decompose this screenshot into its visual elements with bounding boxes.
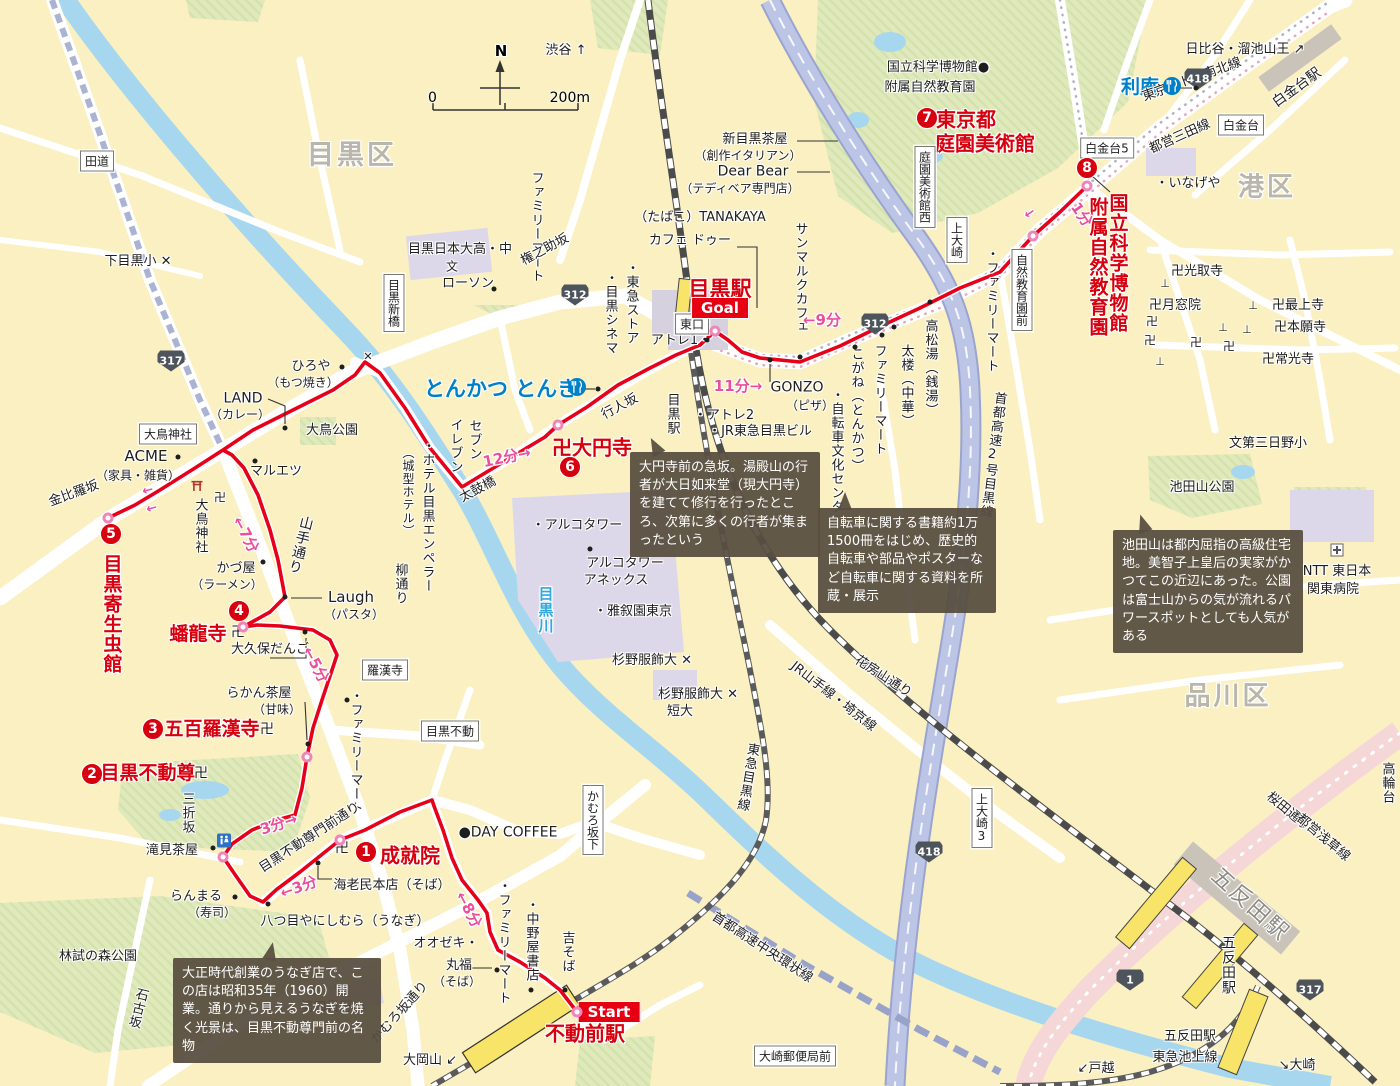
map-label: （城型ホテル） bbox=[402, 447, 414, 538]
map-label: ・目黒シネマ bbox=[604, 271, 617, 355]
map-label: 目黒区 bbox=[307, 142, 397, 170]
map-label: アトレ1・ bbox=[651, 334, 711, 348]
map-label: こがね（とんかつ） bbox=[850, 347, 863, 473]
poi-dot bbox=[563, 988, 568, 993]
map-label: 五反田駅 bbox=[1221, 935, 1235, 995]
poi-dot bbox=[176, 455, 181, 460]
map-label: 卍月窓院 bbox=[1149, 299, 1201, 313]
map-label: 卍 bbox=[1144, 335, 1156, 348]
map-label: 新目黒茶屋 bbox=[722, 133, 787, 147]
map-label: NTT 東日本 bbox=[1303, 565, 1372, 579]
map-label: ・雅叙園東京 bbox=[594, 605, 672, 619]
map-label: 文第三日野小 bbox=[1229, 437, 1307, 451]
map-label: 杉野服飾大 ✕ bbox=[612, 654, 692, 668]
route-number-shield: 418 bbox=[916, 842, 943, 863]
place-badge: 大鳥神社 bbox=[139, 424, 197, 445]
map-label: 林試の森公園 bbox=[59, 950, 137, 964]
hospital-icon bbox=[1331, 542, 1344, 561]
place-badge: 目黒新橋 bbox=[384, 274, 405, 332]
map-label: （そば） bbox=[433, 976, 481, 989]
map-label: 目黒日本大高・中 bbox=[408, 243, 512, 257]
map-label: ファミリーマート bbox=[530, 171, 543, 283]
map-label: アネックス bbox=[584, 574, 649, 588]
place-badge: 白金台5 bbox=[1080, 138, 1134, 159]
map-label: 卍 bbox=[194, 767, 208, 782]
map-label: 海老民本店（そば） bbox=[333, 879, 450, 893]
route-stop-badge-3: 3 bbox=[142, 718, 164, 740]
scale-start-label: 0 bbox=[428, 90, 437, 106]
map-label: （創作イタリアン） bbox=[694, 150, 801, 163]
map-label: ← bbox=[145, 501, 159, 517]
map-label: 太鼓橋 bbox=[458, 475, 499, 505]
map-label: 関東病院 bbox=[1307, 583, 1359, 597]
poi-dot bbox=[316, 861, 321, 866]
map-labels: N 0 200m 渋谷 ↑目黒区下目黒小 ✕目黒日本大高・中文ローソンファミリー… bbox=[0, 0, 1400, 1086]
map-label: ・アトレ2 bbox=[694, 409, 754, 423]
map-label: 蟠龍寺 bbox=[169, 625, 226, 645]
poi-dot bbox=[768, 358, 773, 363]
map-label: ⊥ bbox=[1218, 322, 1228, 334]
map-label: ✕ bbox=[363, 351, 372, 363]
map-label: 八つ目やにしむら（うなぎ） bbox=[260, 915, 429, 929]
poi-dot bbox=[880, 333, 885, 338]
route-waypoint-dot bbox=[1028, 231, 1039, 242]
poi-dot bbox=[340, 365, 345, 370]
map-label: 太楼（中華） bbox=[900, 344, 913, 428]
place-badge: 自然教育園前 bbox=[1012, 249, 1033, 331]
map-label: とんかつ とんき bbox=[424, 378, 578, 400]
poi-dot bbox=[928, 300, 933, 305]
map-label: LAND bbox=[224, 392, 263, 407]
map-label: （家具・雑貨） bbox=[96, 470, 180, 483]
poi-dot bbox=[345, 698, 350, 703]
map-label: ・ファミリーマート bbox=[985, 247, 998, 373]
map-label: 日比谷・溜池山王 ↗ bbox=[1185, 43, 1304, 57]
poi-dot bbox=[529, 988, 534, 993]
map-label: （カレー） bbox=[210, 409, 270, 422]
map-label: ひろや bbox=[291, 360, 330, 374]
place-badge: 白金台 bbox=[1218, 115, 1264, 136]
map-label: Laugh bbox=[328, 590, 374, 606]
map-label: （テディベア専門店） bbox=[680, 183, 799, 196]
map-label: 花房山通り bbox=[852, 654, 914, 701]
map-label: 卍光取寺 bbox=[1171, 265, 1223, 279]
map-label: 大岡山 ↙ bbox=[403, 1054, 457, 1068]
map-label: ローソン bbox=[442, 277, 494, 291]
map-label: ⊥ bbox=[1248, 300, 1258, 312]
map-label: 卍大円寺 bbox=[552, 438, 632, 459]
map-label: 五百羅漢寺 bbox=[164, 720, 259, 740]
map-label: ACME bbox=[125, 449, 168, 465]
map-label: 大鳥公園 bbox=[306, 424, 358, 438]
map-label: 卍常光寺 bbox=[1262, 353, 1314, 367]
map-label: （寿司） bbox=[188, 907, 236, 920]
poi-dot bbox=[892, 325, 897, 330]
toilet-icon bbox=[217, 833, 231, 852]
poi-dot bbox=[492, 287, 497, 292]
info-callout: 池田山は都内屈指の高級住宅地。美智子上皇后の実家がかつてこの近辺にあった。公園は… bbox=[1113, 530, 1303, 653]
map-label: （甘味） bbox=[253, 704, 301, 717]
map-label: 卍 bbox=[1146, 316, 1158, 329]
map-label: 卍 bbox=[214, 492, 226, 505]
place-badge: 上大崎3 bbox=[972, 788, 993, 848]
map-label: ↘大崎 bbox=[1279, 1059, 1316, 1073]
map-label: ・東急ストア bbox=[625, 261, 638, 345]
restaurant-icon bbox=[1163, 77, 1182, 100]
place-badge: 庭園美術館西 bbox=[915, 146, 936, 228]
route-stop-badge-6: 6 bbox=[559, 456, 581, 478]
map-label: 五反田駅 bbox=[1207, 864, 1294, 945]
map-label: ・アルコタワー bbox=[532, 519, 623, 533]
scale-end-label: 200m bbox=[550, 90, 590, 106]
place-badge: かむろ坂下 bbox=[583, 785, 604, 855]
map-label: アルコタワー bbox=[586, 557, 664, 571]
map-label: 権之助坂 bbox=[519, 232, 571, 268]
route-waypoint-dot bbox=[553, 420, 564, 431]
route-waypoint-dot bbox=[1082, 181, 1093, 192]
poi-dot bbox=[588, 547, 593, 552]
map-label: ← bbox=[141, 483, 155, 499]
map-label: ・中野屋書店 bbox=[525, 898, 538, 982]
map-label: ⊥ bbox=[1242, 324, 1252, 336]
map-label: ⊥ bbox=[1160, 278, 1170, 290]
poi-dot bbox=[261, 560, 266, 565]
map-label: 石古坂 bbox=[126, 986, 149, 1030]
map-label: 卍 bbox=[260, 723, 274, 738]
map-label: （もつ焼き） bbox=[267, 377, 339, 390]
route-stop-badge-1: 1 bbox=[355, 841, 377, 863]
map-label: 国立科学博物館 bbox=[1108, 193, 1127, 333]
info-callout-pointer bbox=[838, 492, 852, 510]
map-label: 高松湯（銭湯） bbox=[924, 319, 937, 417]
route-waypoint-dot bbox=[710, 326, 721, 337]
route-flag-start: Start bbox=[578, 1001, 641, 1023]
map-label: ・JR東急目黒ビル bbox=[708, 425, 812, 439]
map-label: 卍 bbox=[1190, 337, 1202, 350]
poi-dot bbox=[253, 459, 258, 464]
map-label: 滝見茶屋 bbox=[146, 844, 198, 858]
info-callout: 自転車に関する書籍約1万1500冊をはじめ、歴史的自転車や部品やポスターなど自転… bbox=[818, 508, 996, 613]
route-stop-badge-8: 8 bbox=[1076, 157, 1098, 179]
map-label: ・ファミリーマート bbox=[497, 879, 510, 1005]
info-callout: 大正時代創業のうなぎ店で、この店は昭和35年（1960）開業。通りから見えるうな… bbox=[173, 958, 381, 1063]
map-label: ↙戸越 bbox=[1078, 1062, 1115, 1076]
compass-north-label: N bbox=[495, 42, 508, 60]
poi-dot bbox=[495, 968, 500, 973]
map-label: ⊥ bbox=[1155, 356, 1165, 368]
poi-dot bbox=[266, 902, 271, 907]
map-label: 3分→ bbox=[258, 812, 299, 839]
poi-dot bbox=[283, 595, 288, 600]
route-number-shield: 312 bbox=[862, 314, 889, 335]
map-label: 池田山公園 bbox=[1169, 481, 1234, 495]
map-label: オオゼキ・ bbox=[413, 937, 478, 951]
map-label: 目黒不動尊門前通り bbox=[257, 800, 363, 875]
route-stop-badge-5: 5 bbox=[100, 523, 122, 545]
route-stop-badge-4: 4 bbox=[228, 600, 250, 622]
map-label: 金比羅坂 bbox=[47, 479, 101, 510]
map-label: 渋谷 ↑ bbox=[545, 44, 586, 58]
map-label: 12分→ bbox=[482, 445, 533, 470]
map-label: 東急池上線 bbox=[1152, 1051, 1217, 1065]
map-label: 山手通り bbox=[286, 514, 314, 576]
poi-dot bbox=[283, 426, 288, 431]
map-label: 庭園美術館 bbox=[935, 134, 1035, 155]
poi-dot bbox=[853, 345, 858, 350]
map-label: 文 bbox=[446, 261, 458, 274]
map-label: 吉そば bbox=[561, 931, 574, 973]
map-label: ・ファミリーマート bbox=[349, 689, 362, 815]
map-label: 目黒駅 bbox=[666, 393, 679, 435]
poi-dot bbox=[211, 846, 216, 851]
place-badge: 羅漢寺 bbox=[362, 660, 408, 681]
route-waypoint-dot bbox=[572, 1007, 583, 1018]
map-label: ←9分 bbox=[803, 313, 841, 329]
map-label: 東京都 bbox=[936, 110, 996, 131]
map-label: （ラーメン） bbox=[191, 579, 263, 592]
map-label: 柳通り bbox=[394, 563, 407, 605]
map-label: 東急目黒線 bbox=[735, 741, 760, 812]
map-label: ←5分 bbox=[299, 645, 331, 686]
info-callout: 大円寺前の急坂。湯殿山の行者が大日如来堂（現大円寺）を建てて修行を行ったところ、… bbox=[630, 452, 820, 557]
place-badge: 目黒不動 bbox=[421, 721, 479, 742]
map-label: 港区 bbox=[1238, 174, 1296, 201]
map-label: ●DAY COFFEE bbox=[459, 826, 558, 841]
map-label: 高輪台 bbox=[1381, 762, 1394, 804]
map-label: セブン bbox=[468, 419, 481, 461]
map-label: 首都高速2号目黒線 bbox=[978, 391, 1007, 520]
map-label: 卍本願寺 bbox=[1274, 321, 1326, 335]
map-label: 11分→ bbox=[714, 379, 762, 395]
map-label: 杉野服飾大 ✕ bbox=[658, 688, 738, 702]
map-label: ファミリーマート bbox=[873, 344, 886, 456]
map-label: 下目黒小 ✕ bbox=[104, 255, 171, 269]
route-stop-badge-2: 2 bbox=[81, 763, 103, 785]
poi-dot bbox=[798, 355, 803, 360]
poi-dot bbox=[596, 387, 601, 392]
route-waypoint-dot bbox=[238, 622, 249, 633]
place-badge: 大崎郵便局前 bbox=[754, 1046, 836, 1067]
map-label: 成就院 bbox=[380, 846, 440, 867]
map-label: 不動前駅 bbox=[545, 1024, 625, 1045]
map-label: ←8分 bbox=[452, 890, 484, 931]
route-number-shield: 1 bbox=[1117, 970, 1144, 991]
map-label: （たばこ）TANAKAYA bbox=[634, 211, 765, 225]
map-label: ・ホテル目黒エンペラー bbox=[421, 439, 434, 593]
route-waypoint-dot bbox=[335, 835, 346, 846]
poi-dot bbox=[705, 338, 710, 343]
map-label: 首都高速中央環状線 bbox=[709, 910, 815, 985]
route-number-shield: 317 bbox=[1297, 980, 1324, 1001]
route-waypoint-dot bbox=[218, 852, 229, 863]
map-label: 五反田駅 bbox=[1164, 1030, 1216, 1044]
map-label: かづ屋 bbox=[216, 562, 255, 576]
map-label: 品川区 bbox=[1184, 683, 1271, 710]
place-badge: 田道 bbox=[80, 151, 114, 172]
map-label: 目黒不動尊 bbox=[100, 764, 195, 784]
route-stop-badge-7: 7 bbox=[916, 107, 938, 129]
place-badge: 上大崎 bbox=[947, 217, 968, 263]
map-label: らんまる bbox=[170, 890, 222, 904]
poi-dot bbox=[1194, 86, 1199, 91]
map-label: 目黒寄生虫館 bbox=[102, 554, 121, 674]
map-label: ←7分 bbox=[229, 515, 261, 556]
torii-icon bbox=[191, 477, 204, 496]
map-label: 丸福 bbox=[446, 959, 472, 973]
route-number-shield: 312 bbox=[562, 285, 589, 306]
map-label: ← bbox=[1022, 205, 1039, 222]
map-label: 大久保だんご bbox=[231, 643, 309, 657]
map-label: 目黒川 bbox=[538, 586, 553, 634]
map-label: 白金台駅 bbox=[1270, 66, 1324, 111]
map-label: 行人坂 bbox=[600, 392, 641, 422]
map-label: ・いなげや bbox=[1155, 177, 1220, 191]
map-label: カフェ ドゥー bbox=[649, 234, 731, 248]
route-flag-goal: Goal bbox=[691, 297, 749, 319]
map-label: （パスタ） bbox=[324, 609, 384, 622]
map-label: （ピザ） bbox=[786, 400, 834, 413]
route-number-shield: 317 bbox=[158, 351, 185, 372]
scale-bar: 0 200m bbox=[425, 90, 590, 116]
poi-dot bbox=[306, 742, 311, 747]
walking-course-map: N 0 200m 渋谷 ↑目黒区下目黒小 ✕目黒日本大高・中文ローソンファミリー… bbox=[0, 0, 1400, 1086]
map-label: 三折坂 bbox=[181, 792, 194, 834]
map-label: イレブン bbox=[449, 418, 462, 474]
map-label: 卍 bbox=[1223, 341, 1235, 354]
map-label: 卍最上寺 bbox=[1272, 299, 1324, 313]
map-label: 短大 bbox=[667, 705, 693, 719]
map-label: 都営三田線 bbox=[1148, 118, 1213, 157]
map-label: GONZO bbox=[771, 381, 824, 396]
map-label: らかん茶屋 bbox=[226, 687, 291, 701]
map-label: 大鳥神社 bbox=[194, 498, 207, 554]
restaurant-icon bbox=[568, 378, 587, 401]
poi-dot bbox=[303, 630, 308, 635]
route-waypoint-dot bbox=[302, 752, 313, 763]
map-label: Dear Bear bbox=[718, 165, 789, 180]
map-label: マルエツ bbox=[250, 465, 302, 479]
route-waypoint-dot bbox=[103, 513, 114, 524]
poi-dot bbox=[233, 895, 238, 900]
map-label: ←3分 bbox=[278, 874, 319, 902]
map-label: 都営浅草線 bbox=[1294, 812, 1353, 864]
map-label: 附属自然教育園 bbox=[884, 81, 975, 95]
map-label: 国立科学博物館● bbox=[887, 61, 989, 75]
